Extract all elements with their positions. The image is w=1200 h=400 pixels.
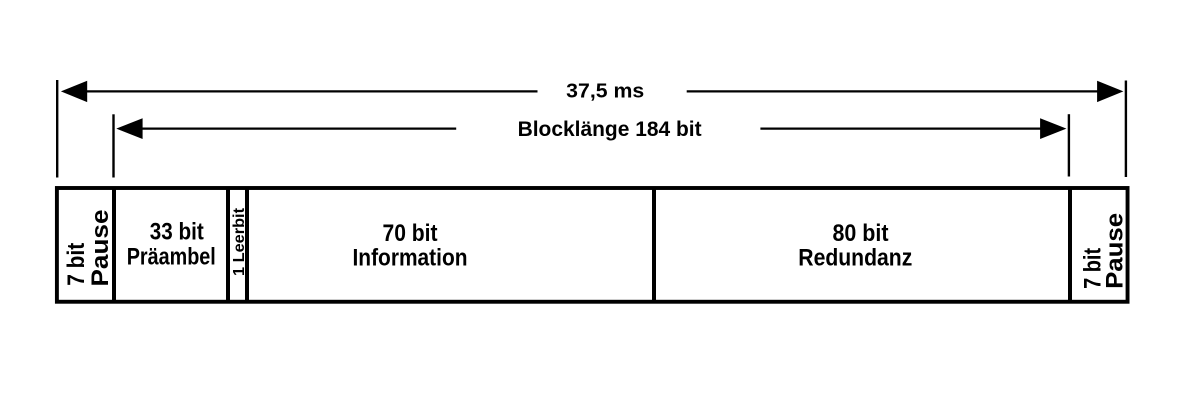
- svg-text:Blocklänge 184 bit: Blocklänge 184 bit: [518, 118, 702, 141]
- svg-text:33 bit: 33 bit: [150, 219, 204, 246]
- svg-text:70 bit: 70 bit: [383, 220, 438, 247]
- svg-text:37,5 ms: 37,5 ms: [566, 80, 644, 102]
- svg-text:80 bit: 80 bit: [833, 220, 889, 247]
- svg-text:1 Leerbit: 1 Leerbit: [231, 207, 248, 276]
- svg-text:Pause: Pause: [87, 210, 114, 287]
- svg-text:Präambel: Präambel: [127, 243, 216, 270]
- svg-text:Information: Information: [353, 245, 468, 272]
- svg-text:Redundanz: Redundanz: [798, 245, 912, 272]
- svg-text:Pause: Pause: [1102, 213, 1129, 289]
